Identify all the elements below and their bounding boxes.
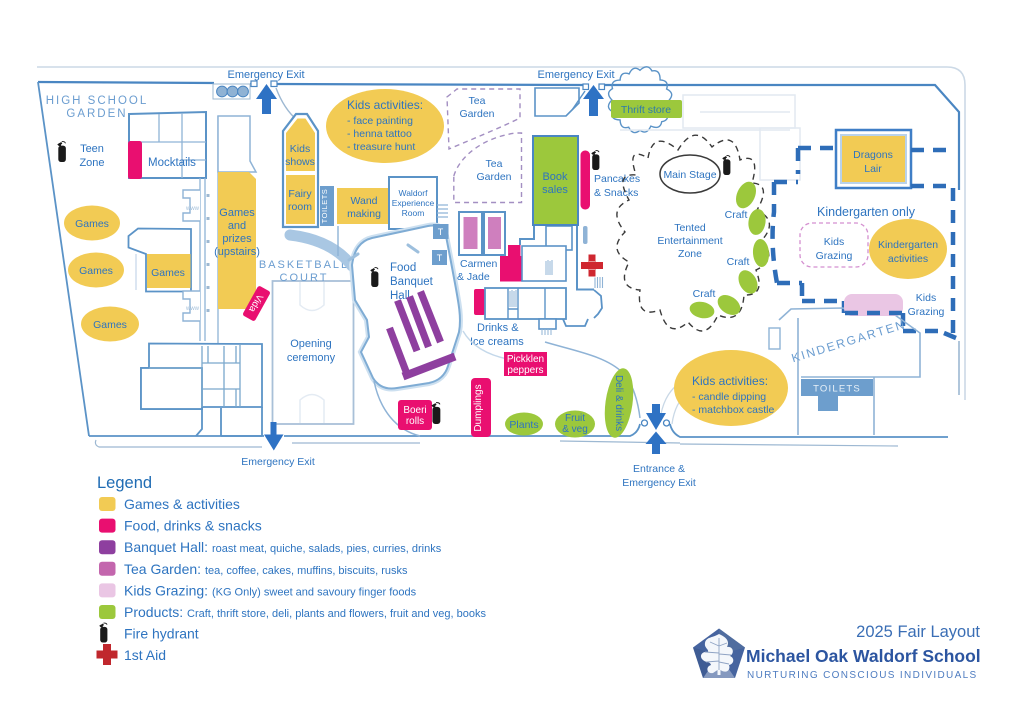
svg-text:Entrance &: Entrance & xyxy=(633,463,685,475)
svg-text:Dragons: Dragons xyxy=(853,149,893,161)
svg-text:Wand: Wand xyxy=(350,195,377,207)
svg-text:Plants: Plants xyxy=(509,419,538,431)
svg-text:Emergency Exit: Emergency Exit xyxy=(227,69,304,81)
svg-text:rolls: rolls xyxy=(406,416,424,427)
svg-text:Kids: Kids xyxy=(916,292,936,304)
svg-text:Food: Food xyxy=(390,262,416,274)
svg-text:Opening: Opening xyxy=(290,338,332,350)
svg-text:NURTURING CONSCIOUS INDIVIDUAL: NURTURING CONSCIOUS INDIVIDUALS xyxy=(747,670,978,681)
svg-text:Kids: Kids xyxy=(824,236,844,248)
svg-text:(upstairs): (upstairs) xyxy=(214,246,260,258)
svg-text:Garden: Garden xyxy=(476,171,511,183)
svg-text:Games & activities: Games & activities xyxy=(124,496,240,512)
svg-text:Kindergarten: Kindergarten xyxy=(878,239,938,251)
svg-text:Boeri: Boeri xyxy=(403,405,426,416)
svg-text:Book: Book xyxy=(542,171,568,183)
svg-text:Zone: Zone xyxy=(79,157,104,169)
svg-text:peppers: peppers xyxy=(507,365,543,376)
svg-text:Drinks &: Drinks & xyxy=(477,322,519,334)
svg-text:Banquet: Banquet xyxy=(390,276,434,288)
svg-text:Experience: Experience xyxy=(392,198,435,208)
svg-text:Craft: Craft xyxy=(727,256,750,268)
svg-text:Waldorf: Waldorf xyxy=(399,188,429,198)
svg-text:- candle dipping: - candle dipping xyxy=(692,391,766,403)
svg-text:Zone: Zone xyxy=(678,248,702,260)
svg-text:Games: Games xyxy=(93,319,127,331)
svg-text:& Snacks: & Snacks xyxy=(594,187,638,199)
svg-text:TOILETS: TOILETS xyxy=(813,384,861,395)
svg-text:Games: Games xyxy=(219,207,255,219)
svg-text:2025 Fair Layout: 2025 Fair Layout xyxy=(856,623,980,641)
svg-text:Grazing: Grazing xyxy=(816,250,853,262)
svg-text:HIGH SCHOOL: HIGH SCHOOL xyxy=(46,95,149,107)
svg-text:- face painting: - face painting xyxy=(347,115,413,127)
svg-text:Food, drinks & snacks: Food, drinks & snacks xyxy=(124,518,262,534)
svg-text:Games: Games xyxy=(151,267,185,279)
svg-text:Garden: Garden xyxy=(459,108,494,120)
svg-text:Games: Games xyxy=(75,218,109,230)
svg-text:T: T xyxy=(438,227,444,237)
svg-text:Kids activities:: Kids activities: xyxy=(347,98,423,112)
svg-text:- henna tattoo: - henna tattoo xyxy=(347,128,412,140)
svg-text:Tea: Tea xyxy=(469,95,486,107)
svg-text:- treasure hunt: - treasure hunt xyxy=(347,141,415,153)
svg-text:Games: Games xyxy=(79,265,113,277)
svg-text:Carmen: Carmen xyxy=(460,258,498,270)
svg-text:TOILETS: TOILETS xyxy=(320,189,329,224)
svg-text:prizes: prizes xyxy=(222,233,252,245)
svg-text:Michael Oak Waldorf School: Michael Oak Waldorf School xyxy=(746,646,981,666)
svg-text:Fire hydrant: Fire hydrant xyxy=(124,626,199,642)
svg-text:& Jade: & Jade xyxy=(457,271,490,283)
svg-text:Emergency Exit: Emergency Exit xyxy=(241,456,315,468)
svg-text:Tea: Tea xyxy=(486,158,503,170)
svg-text:Mocktails: Mocktails xyxy=(148,157,196,169)
svg-text:Ice creams: Ice creams xyxy=(470,336,524,348)
svg-text:Room: Room xyxy=(402,208,425,218)
svg-text:ceremony: ceremony xyxy=(287,352,336,364)
svg-text:making: making xyxy=(347,208,381,220)
svg-text:BASKETBALL: BASKETBALL xyxy=(259,259,349,271)
svg-text:GARDEN: GARDEN xyxy=(66,108,127,120)
svg-text:Emergency Exit: Emergency Exit xyxy=(537,69,614,81)
svg-text:Entertainment: Entertainment xyxy=(657,235,722,247)
svg-text:COURT: COURT xyxy=(280,272,329,284)
svg-text:Teen: Teen xyxy=(80,143,104,155)
svg-text:Craft: Craft xyxy=(693,288,716,300)
svg-text:www: www xyxy=(185,306,200,312)
svg-text:activities: activities xyxy=(888,253,928,265)
svg-text:Kids: Kids xyxy=(290,143,310,155)
svg-text:Tented: Tented xyxy=(674,222,706,234)
svg-text:Grazing: Grazing xyxy=(908,306,945,318)
svg-text:and: and xyxy=(228,220,246,232)
svg-text:Legend: Legend xyxy=(97,474,152,492)
svg-text:Pickklen: Pickklen xyxy=(507,354,544,365)
svg-text:1st Aid: 1st Aid xyxy=(124,647,166,663)
svg-text:Deli & drinks: Deli & drinks xyxy=(613,375,624,431)
svg-text:Fruit: Fruit xyxy=(565,413,585,424)
svg-text:Thrift store: Thrift store xyxy=(621,104,671,116)
svg-text:Dumplings: Dumplings xyxy=(473,384,484,431)
svg-text:& veg: & veg xyxy=(562,424,588,435)
svg-text:- matchbox castle: - matchbox castle xyxy=(692,404,774,416)
svg-text:Lair: Lair xyxy=(864,163,882,175)
svg-text:T: T xyxy=(437,253,443,263)
svg-text:Fairy: Fairy xyxy=(288,188,312,200)
svg-text:Kids activities:: Kids activities: xyxy=(692,374,768,388)
svg-text:Craft: Craft xyxy=(725,209,748,221)
svg-text:shows: shows xyxy=(285,156,315,168)
svg-text:Emergency Exit: Emergency Exit xyxy=(622,477,696,489)
svg-text:Kindergarten only: Kindergarten only xyxy=(817,205,916,219)
svg-text:room: room xyxy=(288,201,312,213)
svg-text:Main Stage: Main Stage xyxy=(663,169,716,181)
svg-text:www: www xyxy=(185,206,200,212)
svg-text:sales: sales xyxy=(542,184,568,196)
